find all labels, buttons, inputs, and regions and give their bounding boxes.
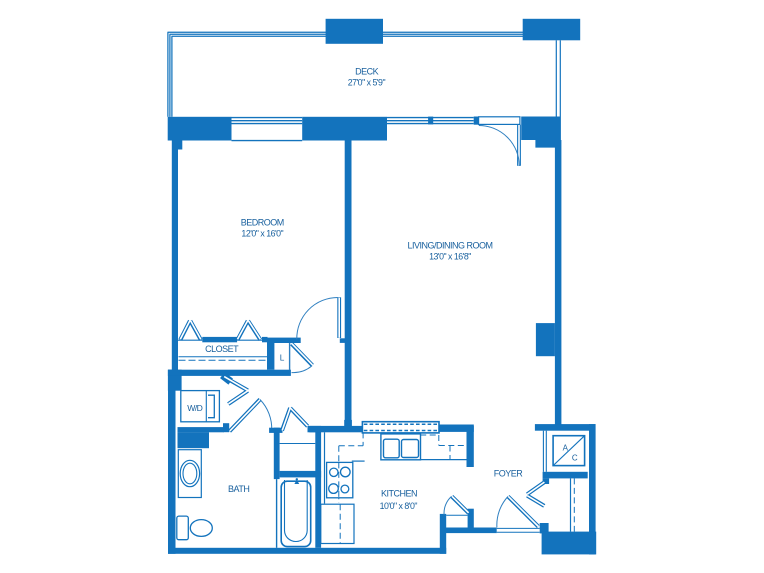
svg-text:C: C: [572, 453, 578, 462]
svg-text:LIVING/DINING ROOM: LIVING/DINING ROOM: [407, 241, 492, 251]
svg-text:27'0" x 5'9": 27'0" x 5'9": [348, 77, 386, 87]
svg-text:CLOSET: CLOSET: [205, 344, 239, 354]
svg-text:BATH: BATH: [228, 484, 249, 494]
svg-text:BEDROOM: BEDROOM: [241, 218, 284, 228]
svg-text:DECK: DECK: [355, 67, 379, 77]
svg-text:FOYER: FOYER: [494, 469, 524, 479]
svg-text:10'0" x 8'0": 10'0" x 8'0": [380, 501, 418, 511]
svg-text:KITCHEN: KITCHEN: [381, 488, 417, 498]
svg-text:W/D: W/D: [187, 403, 202, 413]
svg-text:12'0" x 16'0": 12'0" x 16'0": [241, 229, 283, 239]
svg-text:13'0" x 16'8": 13'0" x 16'8": [429, 252, 471, 262]
